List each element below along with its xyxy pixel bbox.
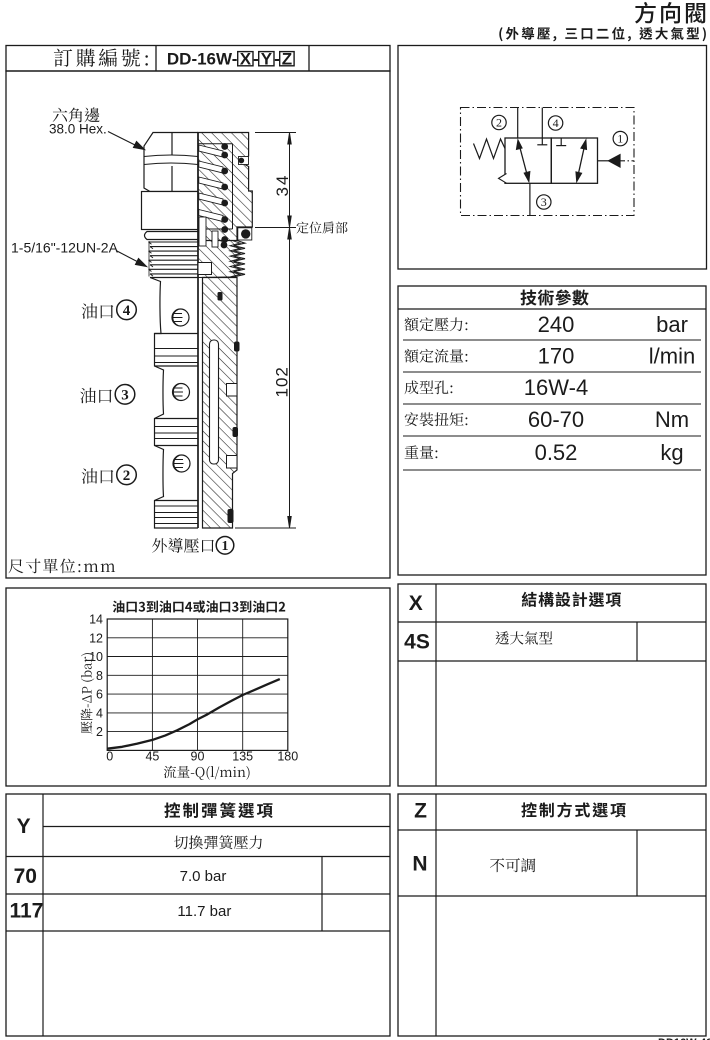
svg-text:6: 6 [96,688,103,702]
svg-text:170: 170 [538,344,575,369]
svg-text:34: 34 [273,174,292,197]
svg-text:117: 117 [9,900,43,923]
svg-text:4S: 4S [404,631,430,654]
svg-text:N: N [412,853,427,876]
svg-text:8: 8 [96,669,103,683]
svg-text:16W-4: 16W-4 [524,375,588,400]
svg-text:Nm: Nm [655,407,689,432]
svg-text:11.7 bar: 11.7 bar [177,903,231,920]
svg-text:4: 4 [553,116,559,130]
svg-text:45: 45 [145,750,159,764]
svg-text:7.0 bar: 7.0 bar [180,868,227,885]
svg-text:102: 102 [273,366,292,397]
svg-text:3: 3 [541,195,547,209]
svg-text:Y: Y [17,815,31,838]
svg-text:3: 3 [121,387,129,403]
svg-text:X: X [409,592,423,615]
svg-text:bar: bar [656,312,688,337]
svg-text:DD-16W-: DD-16W- [167,49,238,68]
svg-text:60-70: 60-70 [528,407,584,432]
svg-text:1-5/16"-12UN-2A: 1-5/16"-12UN-2A [11,240,119,256]
svg-text:4: 4 [96,707,103,721]
svg-text:12: 12 [89,631,103,645]
svg-text:38.0 Hex.: 38.0 Hex. [49,122,107,137]
svg-text:14: 14 [89,613,103,627]
svg-text:-: - [274,49,280,68]
svg-text:4: 4 [123,303,131,319]
svg-text:1: 1 [617,132,623,146]
svg-text:240: 240 [538,312,575,337]
svg-text:135: 135 [232,750,253,764]
svg-text:1: 1 [222,539,229,554]
svg-text:70: 70 [14,865,37,888]
svg-text:l/min: l/min [649,344,695,369]
svg-text:-: - [253,49,259,68]
svg-text:0: 0 [106,750,113,764]
svg-text:Z: Z [414,800,427,823]
svg-text:180: 180 [277,750,298,764]
svg-text:0.52: 0.52 [535,440,578,465]
svg-text:2: 2 [96,725,103,739]
svg-text:kg: kg [660,440,683,465]
svg-text:90: 90 [191,750,205,764]
svg-text:2: 2 [123,468,131,484]
svg-text:2: 2 [496,116,502,130]
